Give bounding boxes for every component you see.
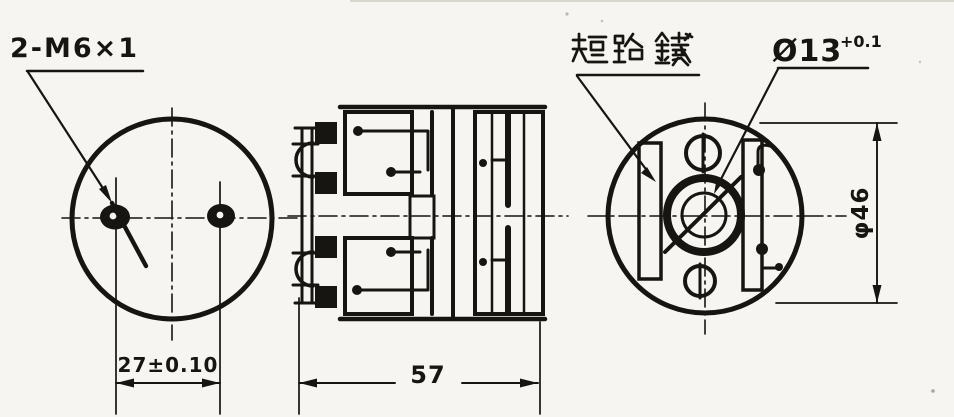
dim-stud-spacing-text: 27±0.10 (118, 353, 219, 377)
terminal-boss-lower (293, 252, 318, 286)
center-hole (665, 177, 741, 252)
internal-wiring (352, 126, 487, 295)
screw-bottom (685, 264, 715, 298)
dim-body-length-text: 57 (410, 361, 445, 389)
hole-callout-label: Ø13 (772, 34, 842, 69)
dim-outer-diameter-text: φ46 (848, 187, 874, 240)
lead-wires (753, 145, 783, 271)
terminal-boss-upper (293, 143, 318, 177)
terminal-stud-right (207, 204, 235, 228)
dim-stud-spacing (116, 379, 220, 388)
engineering-drawing: 2-M6×1 27±0.10 (0, 0, 954, 417)
screw-top (686, 134, 720, 172)
thread-callout-label: 2-M6×1 (10, 33, 139, 64)
hole-callout-tolerance: +0.1 (840, 32, 882, 51)
body-outline (340, 107, 545, 319)
drawing-sheet: 2-M6×1 27±0.10 (0, 0, 954, 417)
end-plate-stack (295, 122, 337, 308)
